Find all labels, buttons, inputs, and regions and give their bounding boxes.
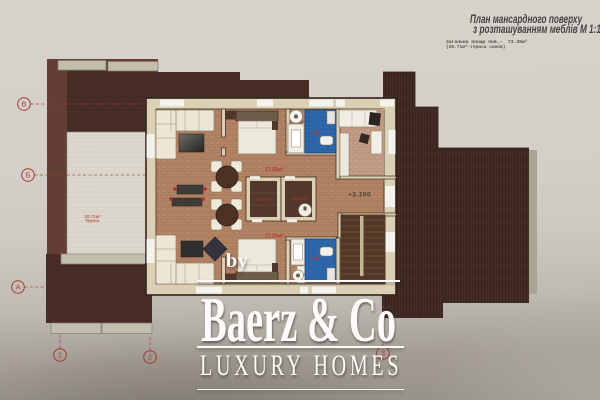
- svg-text:ЖК: ЖК: [311, 256, 319, 262]
- svg-text:Гардероб: Гардероб: [256, 198, 274, 202]
- svg-text:Б: Б: [26, 171, 31, 180]
- svg-text:В: В: [21, 100, 26, 109]
- svg-text:1: 1: [58, 351, 62, 360]
- svg-text:ЖК: ЖК: [311, 130, 319, 136]
- svg-text:17.35м²: 17.35м²: [265, 234, 284, 240]
- svg-text:Гардероб: Гардероб: [290, 197, 308, 201]
- svg-text:+3.100: +3.100: [348, 192, 371, 199]
- svg-text:2: 2: [148, 353, 152, 362]
- svg-text:Тераса: Тераса: [85, 218, 100, 223]
- svg-text:А: А: [15, 283, 20, 292]
- svg-text:17.35м²: 17.35м²: [265, 167, 284, 173]
